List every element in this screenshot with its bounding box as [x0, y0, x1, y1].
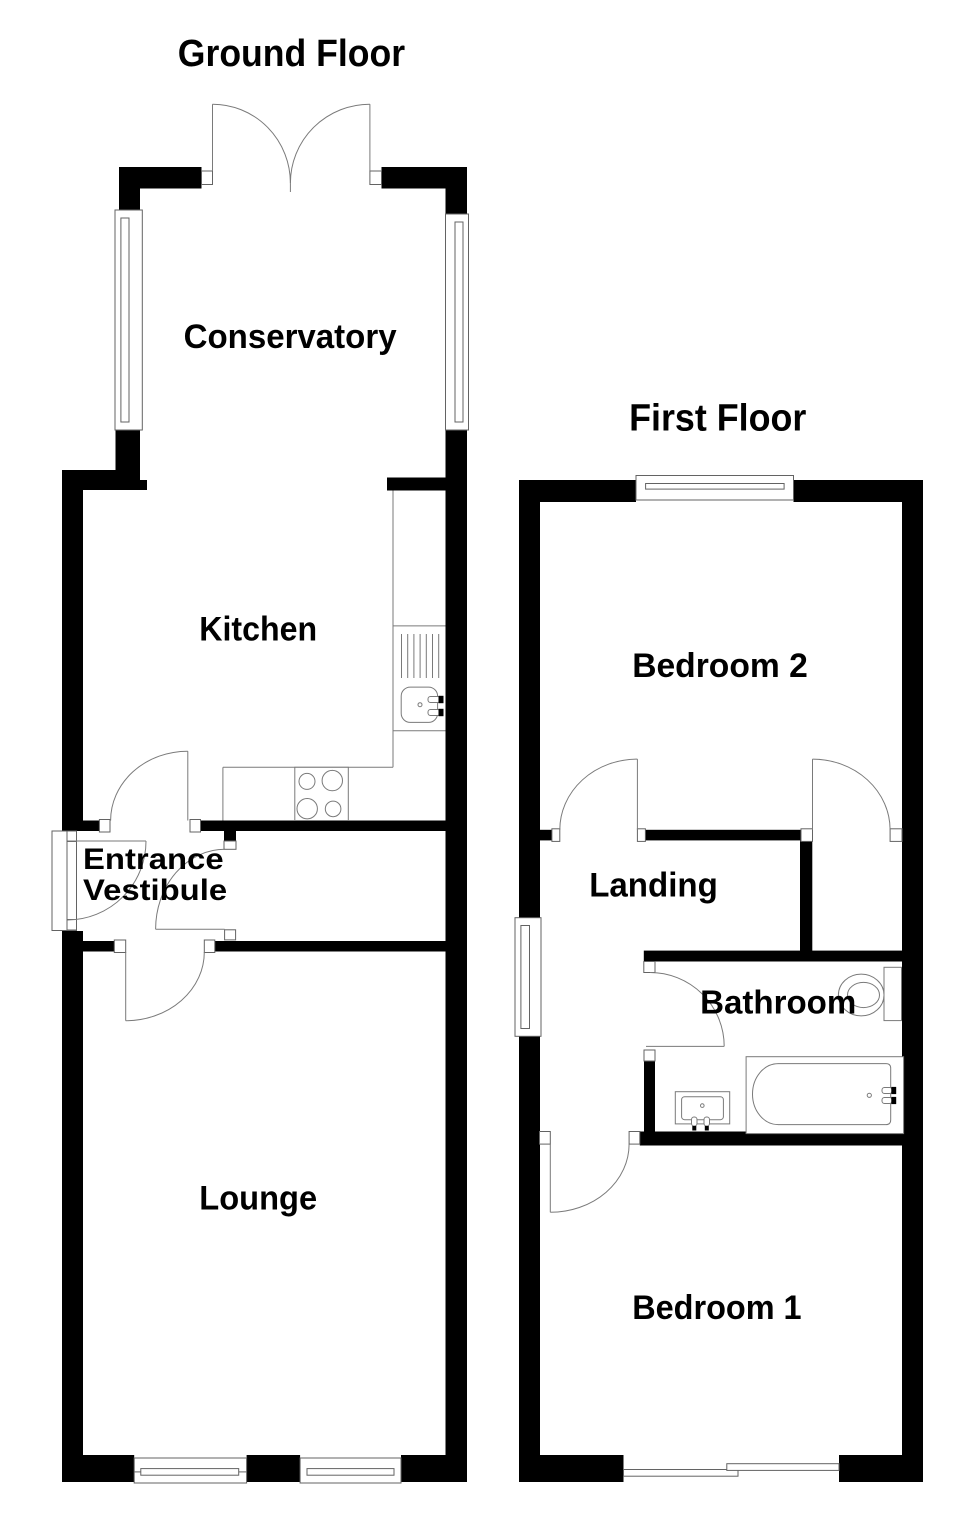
svg-text:First Floor: First Floor — [629, 397, 806, 439]
svg-text:Vestibule: Vestibule — [83, 874, 227, 907]
svg-text:Landing: Landing — [589, 867, 718, 905]
svg-text:Conservatory: Conservatory — [184, 318, 397, 356]
svg-text:Lounge: Lounge — [199, 1179, 317, 1217]
svg-text:Bathroom: Bathroom — [700, 984, 856, 1021]
svg-text:Entrance: Entrance — [83, 843, 224, 876]
svg-text:Kitchen: Kitchen — [199, 611, 317, 649]
svg-text:Bedroom 1: Bedroom 1 — [632, 1289, 801, 1327]
svg-text:Ground Floor: Ground Floor — [178, 33, 405, 75]
svg-text:Bedroom 2: Bedroom 2 — [632, 647, 808, 685]
